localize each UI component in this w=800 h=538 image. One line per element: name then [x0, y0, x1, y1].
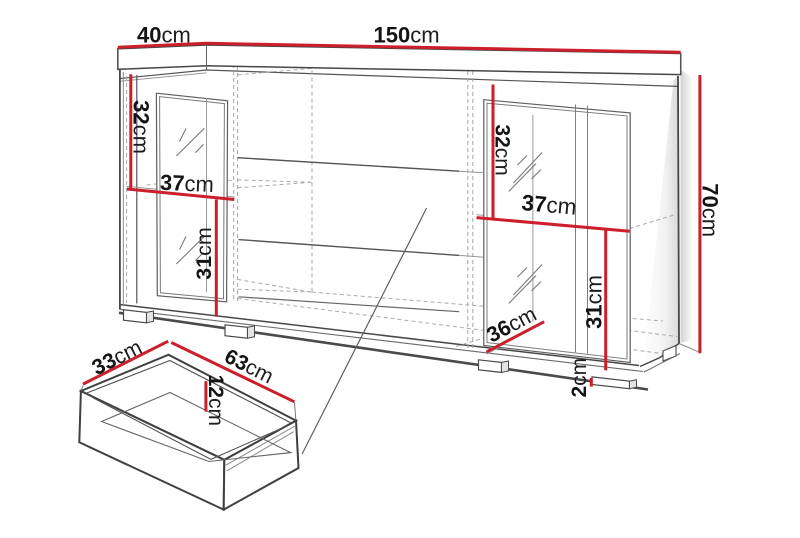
svg-text:12cm: 12cm — [204, 375, 227, 426]
svg-text:2cm: 2cm — [568, 358, 591, 398]
svg-text:37cm: 37cm — [521, 190, 578, 220]
svg-text:31cm: 31cm — [581, 275, 606, 329]
svg-text:40cm: 40cm — [137, 22, 191, 47]
svg-text:32cm: 32cm — [491, 124, 514, 175]
svg-text:150cm: 150cm — [374, 23, 440, 48]
svg-text:32cm: 32cm — [129, 100, 154, 154]
svg-text:37cm: 37cm — [160, 170, 215, 197]
svg-text:31cm: 31cm — [192, 227, 216, 280]
svg-text:70cm: 70cm — [697, 183, 722, 237]
